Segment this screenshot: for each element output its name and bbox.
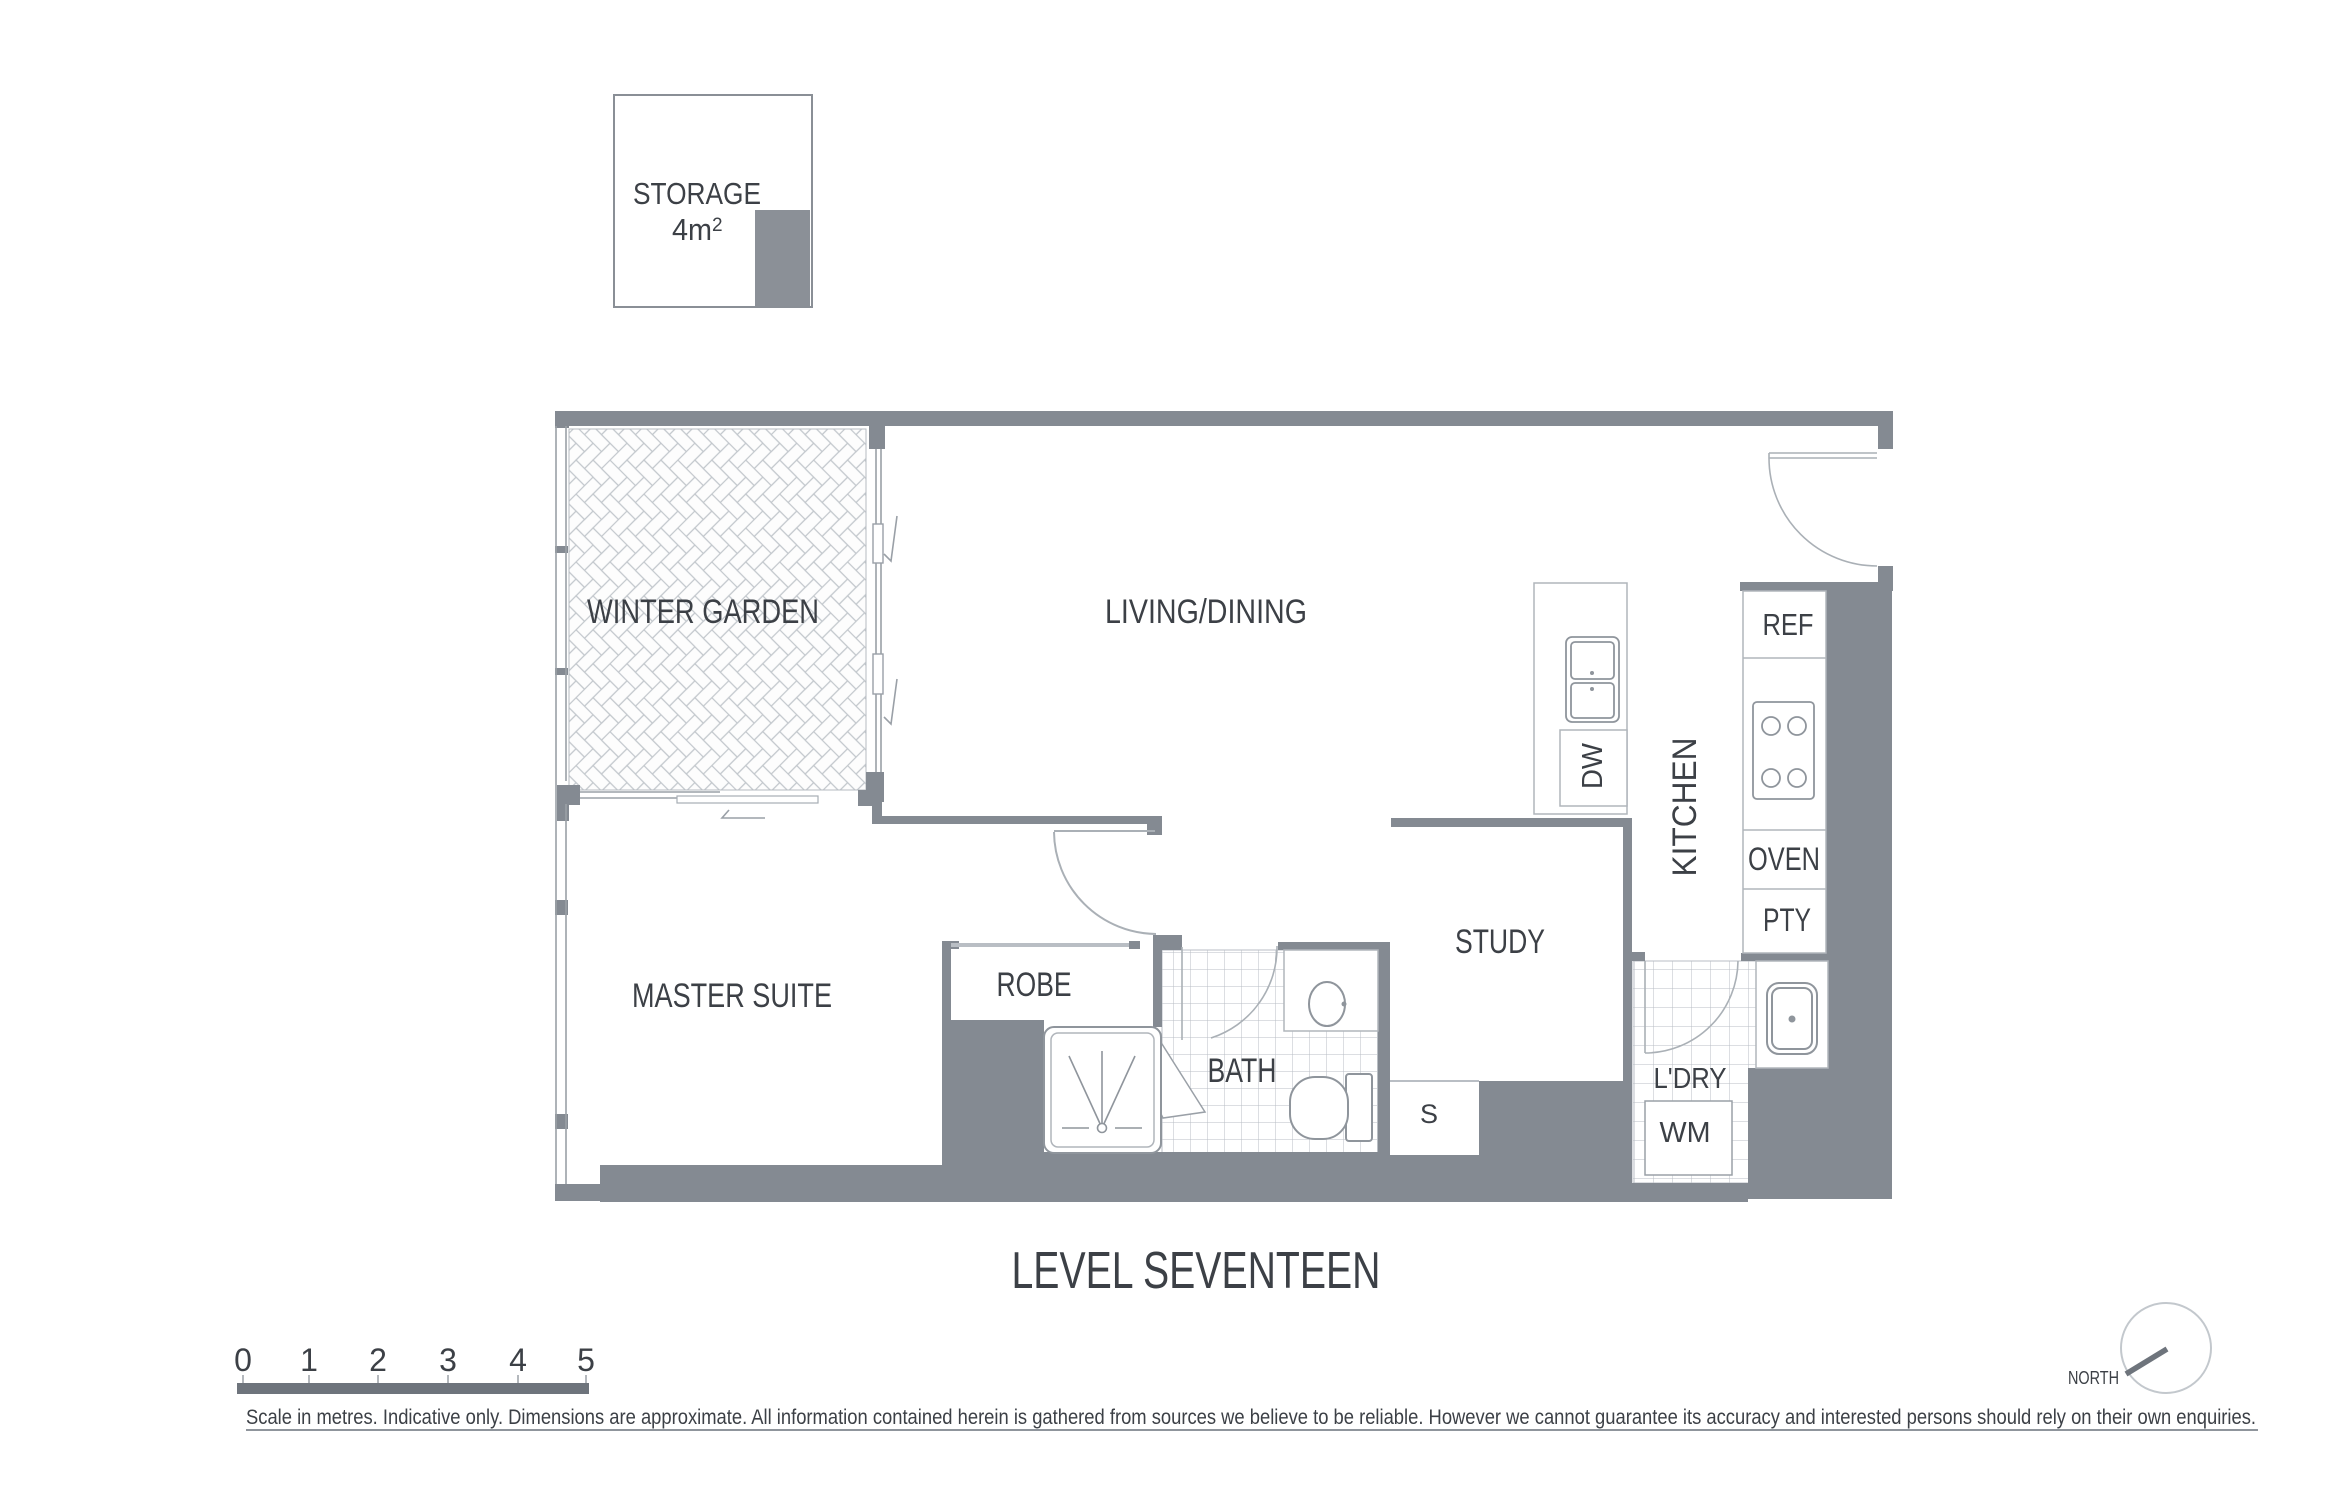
svg-text:KITCHEN: KITCHEN — [1666, 738, 1704, 877]
svg-text:1: 1 — [300, 1342, 318, 1378]
svg-text:OVEN: OVEN — [1748, 841, 1820, 877]
svg-text:BATH: BATH — [1208, 1052, 1277, 1090]
svg-text:WM: WM — [1660, 1117, 1711, 1149]
svg-text:NORTH: NORTH — [2068, 1368, 2119, 1388]
svg-text:PTY: PTY — [1763, 902, 1811, 938]
svg-text:WINTER GARDEN: WINTER GARDEN — [587, 593, 819, 631]
svg-text:REF: REF — [1763, 607, 1814, 642]
svg-text:2: 2 — [369, 1342, 387, 1378]
svg-text:LEVEL SEVENTEEN: LEVEL SEVENTEEN — [1012, 1242, 1381, 1300]
svg-text:0: 0 — [234, 1342, 252, 1378]
svg-text:MASTER SUITE: MASTER SUITE — [632, 977, 832, 1015]
svg-text:S: S — [1420, 1099, 1438, 1129]
svg-text:4: 4 — [509, 1342, 527, 1378]
svg-text:5: 5 — [577, 1342, 595, 1378]
svg-text:Scale in metres. Indicative on: Scale in metres. Indicative only. Dimens… — [246, 1406, 2256, 1429]
svg-text:STUDY: STUDY — [1455, 923, 1545, 961]
svg-text:ROBE: ROBE — [997, 966, 1072, 1004]
svg-text:3: 3 — [439, 1342, 457, 1378]
svg-text:2: 2 — [712, 215, 723, 236]
svg-text:LIVING/DINING: LIVING/DINING — [1105, 593, 1307, 631]
svg-text:4m: 4m — [672, 212, 712, 247]
svg-text:DW: DW — [1577, 742, 1609, 789]
svg-text:L'DRY: L'DRY — [1654, 1063, 1727, 1095]
svg-text:STORAGE: STORAGE — [633, 176, 761, 211]
